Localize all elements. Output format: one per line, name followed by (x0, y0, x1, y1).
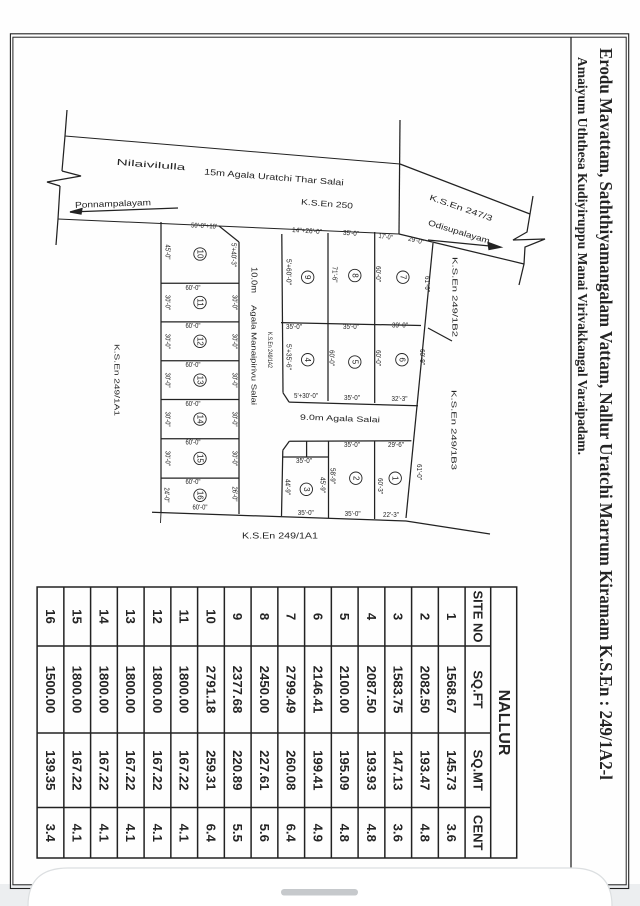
svg-text:60'-0": 60'-0" (328, 350, 335, 366)
svg-text:30'-0": 30'-0" (231, 451, 238, 466)
svg-text:10: 10 (196, 250, 205, 259)
svg-text:167.22: 167.22 (177, 750, 192, 790)
svg-text:2450.00: 2450.00 (257, 666, 272, 714)
svg-text:60'-0": 60'-0" (186, 401, 201, 408)
svg-text:10: 10 (203, 609, 218, 624)
svg-text:SQ.MT: SQ.MT (470, 750, 485, 791)
svg-text:5'+30'-0": 5'+30'-0" (294, 393, 318, 400)
svg-text:259.31: 259.31 (203, 750, 218, 790)
svg-text:58'-9": 58'-9" (328, 468, 335, 484)
svg-text:SITE NO: SITE NO (470, 590, 485, 642)
svg-text:SQ.FT: SQ.FT (470, 670, 485, 708)
svg-text:16: 16 (43, 609, 58, 624)
svg-text:15: 15 (70, 609, 85, 624)
svg-text:60'-0": 60'-0" (193, 505, 208, 512)
svg-text:30'-0": 30'-0" (231, 373, 238, 388)
svg-text:193.93: 193.93 (364, 750, 379, 790)
svg-text:4.1: 4.1 (150, 824, 165, 842)
svg-text:2146.41: 2146.41 (310, 666, 325, 714)
svg-text:15: 15 (196, 454, 205, 463)
svg-text:2377.68: 2377.68 (230, 666, 245, 714)
svg-text:61'-0": 61'-0" (415, 464, 422, 480)
svg-text:167.22: 167.22 (123, 750, 138, 790)
svg-text:29'-6": 29'-6" (388, 442, 404, 449)
svg-text:7: 7 (398, 275, 407, 280)
svg-text:60'-0": 60'-0" (374, 266, 381, 282)
svg-text:3.6: 3.6 (444, 824, 459, 842)
svg-text:12: 12 (196, 337, 205, 346)
svg-text:35'-0": 35'-0" (298, 510, 314, 517)
svg-text:2082.50: 2082.50 (417, 666, 432, 714)
svg-text:5'+60'-0": 5'+60'-0" (285, 259, 292, 285)
svg-text:1: 1 (391, 476, 400, 481)
svg-text:145.73: 145.73 (444, 750, 459, 790)
svg-text:6.4: 6.4 (203, 824, 218, 843)
svg-text:3: 3 (302, 487, 311, 492)
svg-text:35'-0": 35'-0" (343, 324, 359, 331)
svg-text:4: 4 (303, 357, 312, 362)
svg-text:9: 9 (303, 275, 312, 280)
svg-text:35'-0": 35'-0" (344, 395, 360, 402)
svg-text:5: 5 (350, 360, 359, 365)
svg-text:4.1: 4.1 (96, 824, 111, 842)
svg-text:4.8: 4.8 (417, 824, 432, 842)
svg-text:35'-0": 35'-0" (296, 458, 312, 465)
svg-text:60'-0": 60'-0" (186, 362, 201, 369)
svg-text:1800.00: 1800.00 (123, 666, 138, 714)
svg-text:30'-0": 30'-0" (164, 451, 171, 466)
svg-text:6.4: 6.4 (284, 824, 299, 843)
svg-text:167.22: 167.22 (150, 750, 165, 790)
svg-text:13: 13 (196, 376, 205, 385)
svg-text:5: 5 (337, 613, 352, 620)
svg-text:K.S.En 249/1A2: K.S.En 249/1A2 (266, 332, 272, 369)
svg-text:26'-0": 26'-0" (231, 487, 238, 502)
svg-text:30'-0": 30'-0" (231, 295, 238, 310)
svg-text:1800.00: 1800.00 (150, 666, 165, 714)
svg-text:167.22: 167.22 (96, 750, 111, 790)
svg-text:60'-0": 60'-0" (186, 439, 201, 446)
svg-text:39'-0": 39'-0" (392, 323, 408, 330)
svg-text:139.35: 139.35 (43, 750, 58, 790)
svg-text:2: 2 (417, 613, 432, 620)
svg-text:1500.00: 1500.00 (43, 666, 58, 714)
svg-text:35'-0": 35'-0" (286, 324, 302, 331)
svg-text:K.S.En 249/1B3: K.S.En 249/1B3 (450, 390, 459, 470)
svg-text:32'-3": 32'-3" (392, 396, 408, 403)
svg-text:14: 14 (196, 415, 205, 424)
svg-text:45'-0": 45'-0" (164, 245, 171, 260)
svg-text:4: 4 (364, 613, 379, 621)
svg-text:11: 11 (177, 610, 192, 624)
svg-text:1583.75: 1583.75 (391, 666, 406, 714)
svg-text:4.9: 4.9 (310, 824, 325, 842)
svg-text:6: 6 (397, 357, 406, 362)
svg-text:30'-0": 30'-0" (231, 412, 238, 427)
svg-text:5'+35'-6": 5'+35'-6" (285, 344, 292, 370)
svg-text:60'-0": 60'-0" (186, 285, 201, 292)
svg-text:2087.50: 2087.50 (364, 666, 379, 714)
svg-text:60'-0": 60'-0" (186, 323, 201, 330)
svg-text:167.22: 167.22 (70, 750, 85, 790)
svg-text:Erodu Mavattam, Saththiyamanga: Erodu Mavattam, Saththiyamangalam Vattam… (596, 48, 616, 780)
svg-text:30'-0": 30'-0" (164, 412, 171, 427)
svg-text:Agala Manaipirivu Salai: Agala Manaipirivu Salai (250, 305, 259, 405)
svg-text:1800.00: 1800.00 (177, 666, 192, 714)
svg-text:35'-0": 35'-0" (343, 230, 360, 238)
svg-text:14: 14 (96, 609, 111, 624)
svg-text:8: 8 (257, 613, 272, 620)
svg-text:60'-0": 60'-0" (186, 479, 201, 486)
svg-text:4.1: 4.1 (70, 824, 85, 842)
svg-text:5.6: 5.6 (257, 824, 272, 842)
svg-text:NALLUR: NALLUR (495, 690, 512, 756)
svg-text:3: 3 (391, 613, 406, 620)
svg-text:1800.00: 1800.00 (96, 666, 111, 714)
svg-text:2100.00: 2100.00 (337, 666, 352, 714)
svg-text:11: 11 (196, 298, 205, 307)
svg-text:195.09: 195.09 (337, 750, 352, 790)
svg-text:9: 9 (230, 613, 245, 620)
svg-text:8: 8 (350, 273, 359, 278)
svg-text:60'-9": 60'-9" (418, 349, 425, 365)
svg-text:Amaiyum Uththesa Kudiyiruppu M: Amaiyum Uththesa Kudiyiruppu Manai Viriv… (575, 57, 590, 455)
svg-text:4.1: 4.1 (123, 824, 138, 842)
svg-text:4.8: 4.8 (337, 824, 352, 842)
svg-text:K.S.En 249/1A1: K.S.En 249/1A1 (242, 532, 319, 541)
svg-text:30'-0": 30'-0" (164, 334, 171, 349)
svg-text:30'-0": 30'-0" (164, 295, 171, 310)
svg-text:K.S.En 249/1B2: K.S.En 249/1B2 (451, 257, 460, 337)
svg-text:K.S.En 249/1A1: K.S.En 249/1A1 (113, 344, 122, 416)
svg-text:50'-0"+10': 50'-0"+10' (191, 222, 217, 230)
svg-text:CENT: CENT (470, 815, 485, 850)
svg-text:2: 2 (351, 476, 360, 481)
svg-text:3.4: 3.4 (43, 824, 58, 843)
svg-text:2791.18: 2791.18 (203, 666, 218, 714)
svg-text:260.08: 260.08 (284, 750, 299, 790)
svg-text:45'-9": 45'-9" (318, 477, 325, 493)
svg-text:44'-9": 44'-9" (284, 479, 291, 495)
svg-text:2799.49: 2799.49 (284, 666, 299, 714)
svg-text:1800.00: 1800.00 (70, 666, 85, 714)
svg-text:193.47: 193.47 (417, 750, 432, 790)
svg-text:12: 12 (150, 609, 165, 624)
svg-text:6: 6 (310, 613, 325, 620)
svg-text:10.0m: 10.0m (250, 267, 259, 293)
svg-text:13: 13 (123, 609, 138, 624)
svg-text:35'-0": 35'-0" (344, 442, 360, 449)
svg-text:30'-0": 30'-0" (164, 373, 171, 388)
svg-text:1: 1 (444, 613, 459, 620)
svg-text:4.1: 4.1 (177, 824, 192, 842)
svg-text:5.5: 5.5 (230, 824, 245, 842)
svg-text:147.13: 147.13 (391, 750, 406, 790)
svg-text:24'-0": 24'-0" (163, 488, 170, 503)
svg-text:199.41: 199.41 (310, 750, 325, 790)
svg-text:61'-6": 61'-6" (423, 276, 430, 292)
svg-text:35'-0": 35'-0" (345, 511, 361, 518)
svg-text:227.61: 227.61 (257, 750, 272, 790)
svg-text:3.6: 3.6 (391, 824, 406, 842)
svg-text:16: 16 (196, 491, 205, 500)
svg-text:7: 7 (284, 613, 299, 620)
svg-text:60'-3": 60'-3" (376, 478, 383, 494)
svg-text:71'-6": 71'-6" (331, 267, 338, 283)
svg-text:60'-0": 60'-0" (374, 350, 381, 366)
svg-text:220.89: 220.89 (230, 750, 245, 790)
svg-text:1568.67: 1568.67 (444, 666, 459, 714)
svg-text:4.8: 4.8 (364, 824, 379, 842)
svg-text:5'+40'-3": 5'+40'-3" (230, 243, 237, 267)
svg-text:22'-3": 22'-3" (383, 512, 399, 519)
svg-text:30'-0": 30'-0" (231, 334, 238, 349)
